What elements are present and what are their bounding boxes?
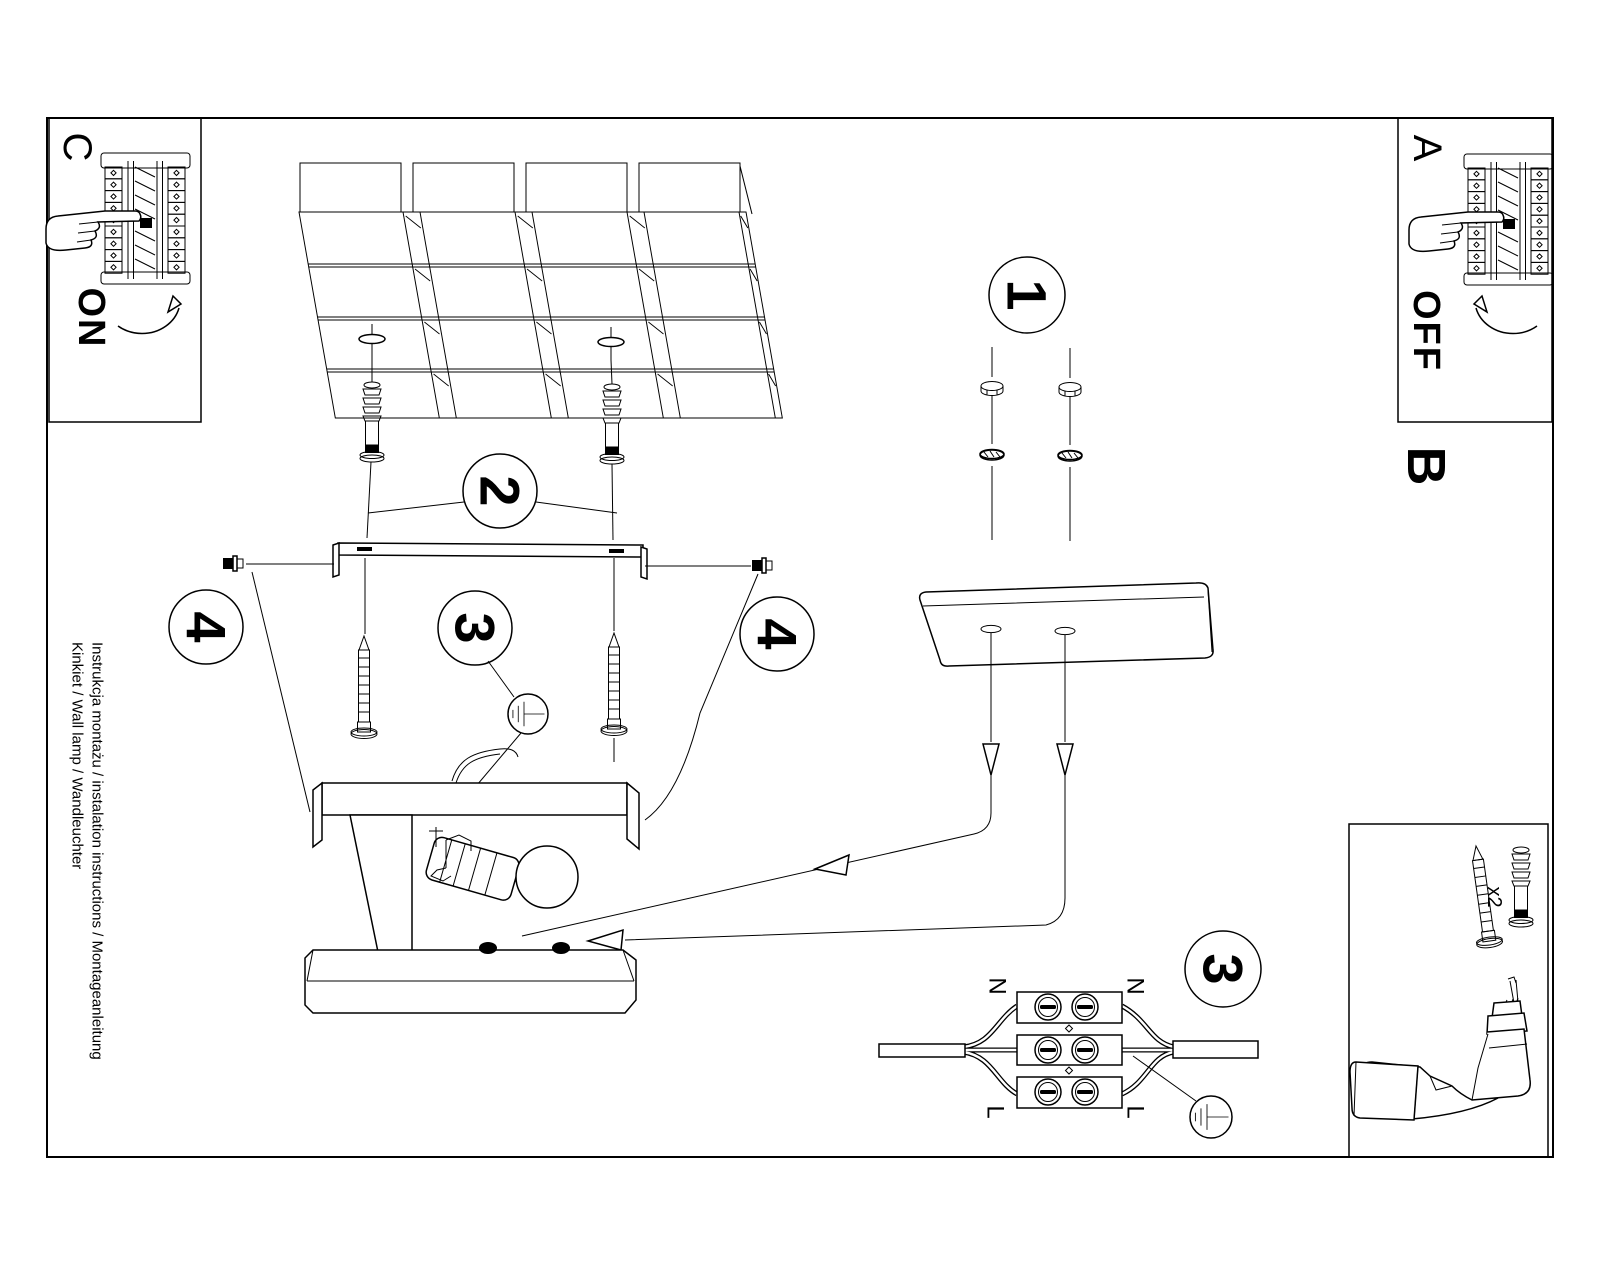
- wall-tile-tops: [300, 163, 752, 214]
- panel-a-power-off: A OFF: [1398, 118, 1553, 422]
- lamp-wire: [452, 749, 518, 783]
- wood-screw-right: [601, 558, 627, 762]
- screw-qty-label: x2: [1483, 886, 1505, 907]
- wires-right: [1122, 1006, 1174, 1094]
- panel-c-power-on: C ON: [46, 118, 201, 422]
- pack-wall-plug: [1509, 847, 1533, 927]
- n-label-left: N: [984, 977, 1011, 994]
- panel-c-border: [49, 118, 201, 422]
- bracket-slot: [609, 549, 624, 553]
- pointing-hand-icon: [1409, 212, 1504, 251]
- lamp-body-drawing: [305, 749, 639, 1013]
- mounting-stud: [479, 942, 497, 954]
- wiring-diagram: N N L L 3: [879, 931, 1261, 1138]
- mounting-stud: [552, 942, 570, 954]
- curved-arrow-icon: [118, 296, 181, 334]
- step-1-fasteners: 1: [980, 257, 1082, 541]
- washer: [980, 450, 1004, 461]
- wood-screw-left: [351, 558, 377, 739]
- step-4-left: 4: [169, 556, 334, 812]
- step-4-number-left: 4: [175, 611, 238, 642]
- step-3-ground: 3: [438, 591, 548, 798]
- off-label: OFF: [1405, 290, 1447, 372]
- step-4-number-right: 4: [746, 618, 809, 649]
- cable-left: [879, 1044, 965, 1057]
- mounting-bracket: [333, 543, 647, 579]
- step-2-number: 2: [469, 475, 532, 506]
- on-label: ON: [70, 288, 112, 349]
- terminal-block: [1017, 992, 1122, 1108]
- instruction-sheet: C ON A OFF B Instrukcja montażu / instal…: [0, 0, 1600, 1280]
- lamp-top-bar: [322, 783, 627, 815]
- step-1-number: 1: [996, 279, 1059, 310]
- wires-left: [963, 1006, 1017, 1094]
- hex-nut: [1059, 383, 1081, 397]
- bulb-socket: [424, 835, 521, 902]
- hex-nut: [981, 382, 1003, 396]
- back-plate: [920, 583, 1214, 666]
- bulb: [516, 846, 578, 908]
- instruction-drawing: C ON A OFF B Instrukcja montażu / instal…: [0, 0, 1600, 1280]
- curved-arrow-icon: [1474, 296, 1537, 334]
- tiled-wall-drawing: [299, 163, 782, 418]
- wall-plug-left: [360, 357, 384, 538]
- section-b-label: B: [1396, 447, 1456, 486]
- step-4-right: 4: [645, 558, 814, 820]
- tools-box: x2: [1349, 824, 1548, 1157]
- side-instructions-text: Instrukcja montażu / instalation instruc…: [89, 642, 106, 1060]
- washer: [1058, 451, 1082, 462]
- n-label-right: N: [1122, 977, 1149, 994]
- drill-icon: [1350, 977, 1530, 1120]
- wall-tile-grid: [299, 212, 782, 418]
- panel-a-label: A: [1405, 135, 1449, 162]
- pointing-hand-icon: [46, 211, 141, 250]
- side-product-text: Kinkiet / Wall lamp / Wandleuchter: [69, 642, 86, 869]
- machine-bolt-left: [223, 556, 243, 571]
- l-label-left: L: [982, 1105, 1009, 1118]
- bracket-slot: [357, 547, 372, 551]
- lamp-post: [350, 815, 412, 952]
- machine-bolt-right: [752, 558, 772, 573]
- panel-c-label: C: [55, 133, 99, 162]
- l-label-right: L: [1122, 1105, 1149, 1118]
- wall-plug-right: [600, 360, 624, 540]
- step-2-badge: 2: [368, 454, 617, 528]
- step-3-wiring-number: 3: [1192, 953, 1255, 984]
- cable-right: [1173, 1041, 1258, 1058]
- drill-holes: [359, 324, 624, 360]
- step-3-number: 3: [444, 612, 507, 643]
